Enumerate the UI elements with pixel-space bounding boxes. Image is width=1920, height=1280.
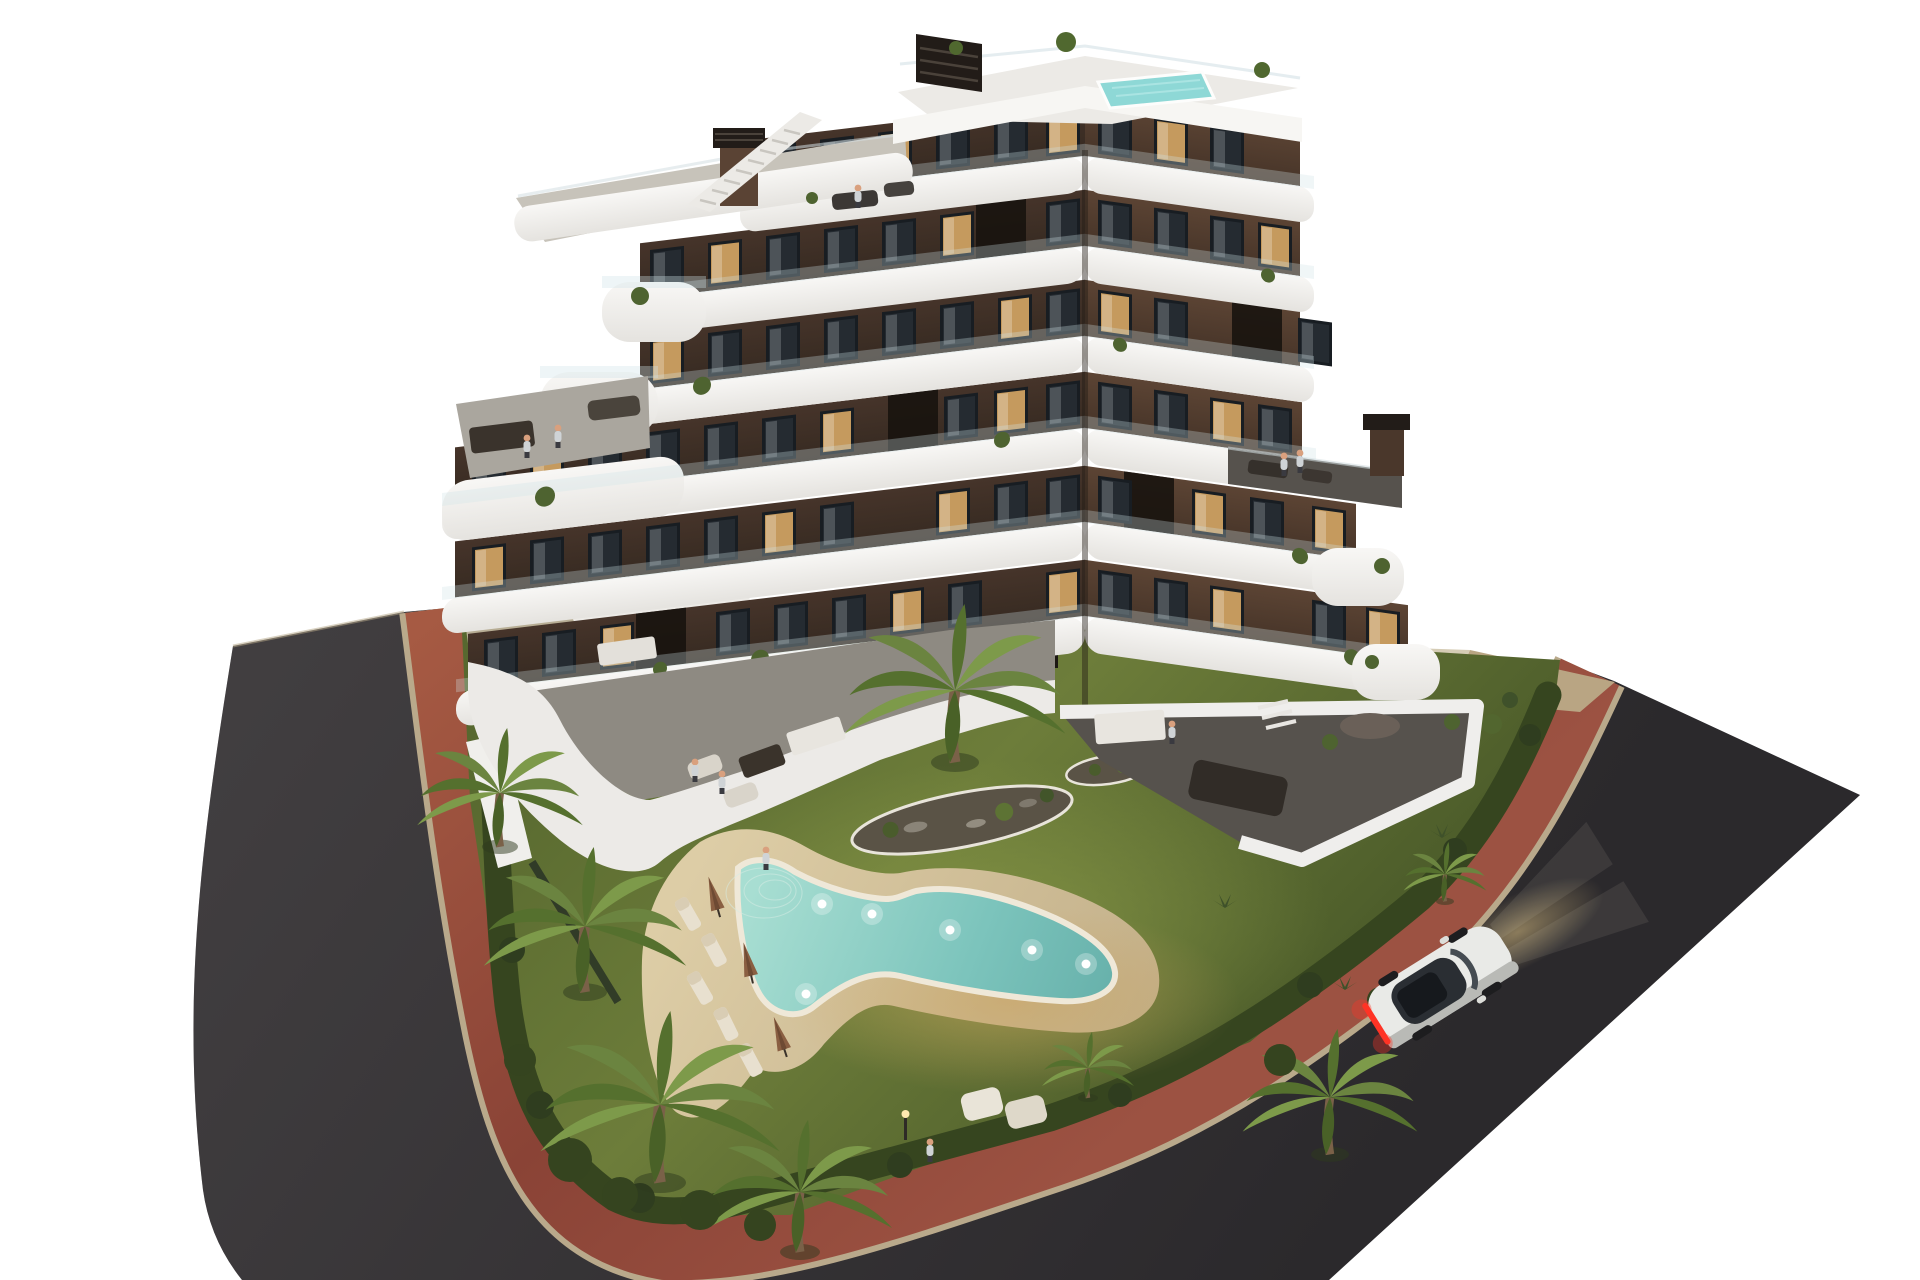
- dining-table: [1094, 710, 1166, 745]
- person: [763, 847, 770, 870]
- person: [1281, 453, 1288, 476]
- person: [1169, 721, 1176, 744]
- penthouse-chimney: [916, 34, 982, 92]
- bulge-balcony: [602, 276, 706, 342]
- person: [692, 759, 699, 782]
- person: [719, 771, 726, 794]
- person: [555, 425, 562, 448]
- person: [927, 1139, 934, 1162]
- outdoor-rug: [1340, 713, 1400, 739]
- person: [1297, 450, 1304, 473]
- person: [524, 435, 531, 458]
- render-canvas: [0, 0, 1920, 1280]
- bulge-balcony: [1352, 644, 1440, 700]
- chimney: [1370, 424, 1404, 476]
- bulge-balcony: [1312, 548, 1404, 606]
- corner-shadow: [1082, 150, 1088, 710]
- architectural-render: [0, 0, 1920, 1280]
- person: [855, 185, 862, 208]
